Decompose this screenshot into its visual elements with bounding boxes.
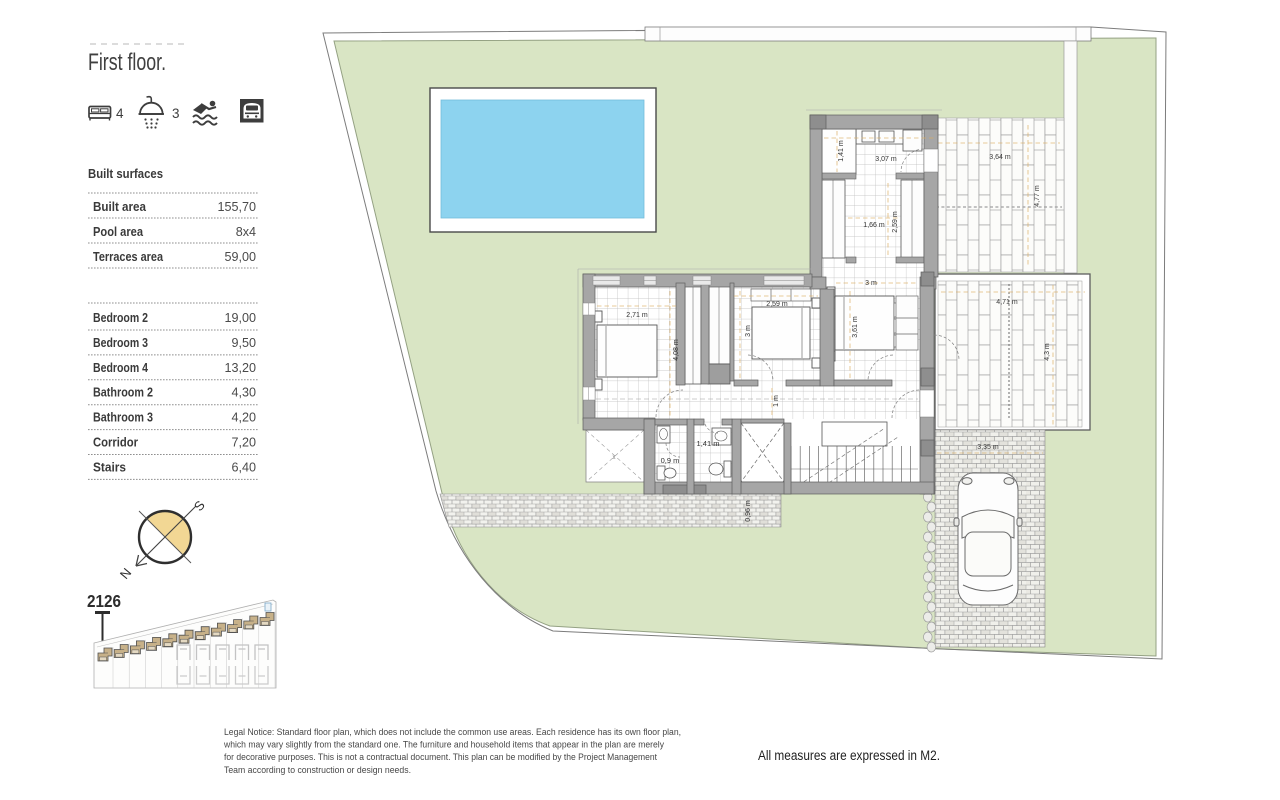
svg-text:3 m: 3 m <box>745 325 752 337</box>
svg-text:4,30: 4,30 <box>231 386 256 400</box>
svg-text:6,40: 6,40 <box>231 460 256 474</box>
svg-text:3: 3 <box>172 106 180 121</box>
svg-text:4,77 m: 4,77 m <box>1034 185 1041 207</box>
svg-text:2,59 m: 2,59 m <box>892 211 899 233</box>
svg-text:59,00: 59,00 <box>224 250 256 264</box>
svg-text:2126: 2126 <box>87 591 121 611</box>
svg-text:Stairs: Stairs <box>93 460 126 474</box>
svg-text:2,71 m: 2,71 m <box>626 312 648 319</box>
svg-text:Team according to construction: Team according to construction or design… <box>224 765 411 775</box>
svg-text:for decorative purposes. This: for decorative purposes. This is not a c… <box>224 752 658 762</box>
svg-text:All measures are expressed in: All measures are expressed in M2. <box>758 748 940 763</box>
svg-text:x: x <box>613 455 616 461</box>
svg-text:0,96 m: 0,96 m <box>745 500 752 522</box>
svg-text:3,07 m: 3,07 m <box>875 156 897 163</box>
svg-text:which may vary slightly from t: which may vary slightly from the standar… <box>223 740 665 750</box>
svg-text:Bedroom 4: Bedroom 4 <box>93 361 148 375</box>
svg-text:Built area: Built area <box>93 200 147 214</box>
svg-text:Terraces area: Terraces area <box>93 250 164 264</box>
svg-text:Legal Notice: Standard floor p: Legal Notice: Standard floor plan, which… <box>224 727 681 737</box>
svg-text:Bathroom 2: Bathroom 2 <box>93 386 153 400</box>
svg-text:4,3 m: 4,3 m <box>1044 343 1051 361</box>
svg-text:4: 4 <box>116 106 124 121</box>
svg-text:First floor.: First floor. <box>88 49 166 76</box>
svg-text:13,20: 13,20 <box>224 361 256 375</box>
svg-text:Bathroom 3: Bathroom 3 <box>93 411 153 425</box>
svg-text:4,71 m: 4,71 m <box>996 299 1018 306</box>
svg-text:9,50: 9,50 <box>231 336 256 350</box>
svg-text:Corridor: Corridor <box>93 436 138 450</box>
svg-text:1,41 m: 1,41 m <box>838 140 845 162</box>
svg-text:1 m: 1 m <box>773 395 780 407</box>
svg-text:Bedroom 3: Bedroom 3 <box>93 336 148 350</box>
svg-text:4,08 m: 4,08 m <box>673 339 680 361</box>
svg-text:19,00: 19,00 <box>224 311 256 325</box>
svg-text:2,59 m: 2,59 m <box>766 301 788 308</box>
svg-text:7,20: 7,20 <box>231 436 256 450</box>
svg-text:3,64 m: 3,64 m <box>989 154 1011 161</box>
svg-text:Bedroom 2: Bedroom 2 <box>93 311 148 325</box>
svg-text:1,66 m: 1,66 m <box>863 222 885 229</box>
svg-text:3,61 m: 3,61 m <box>852 316 859 338</box>
svg-text:Built surfaces: Built surfaces <box>88 166 163 181</box>
svg-text:1,41 m: 1,41 m <box>697 439 720 448</box>
svg-text:Pool area: Pool area <box>93 225 144 239</box>
svg-text:155,70: 155,70 <box>217 200 256 214</box>
svg-text:8x4: 8x4 <box>236 225 256 239</box>
svg-text:3 m: 3 m <box>865 280 877 287</box>
svg-text:4,20: 4,20 <box>231 411 256 425</box>
svg-text:3,35 m: 3,35 m <box>977 444 999 451</box>
svg-text:0,9 m: 0,9 m <box>661 456 680 465</box>
